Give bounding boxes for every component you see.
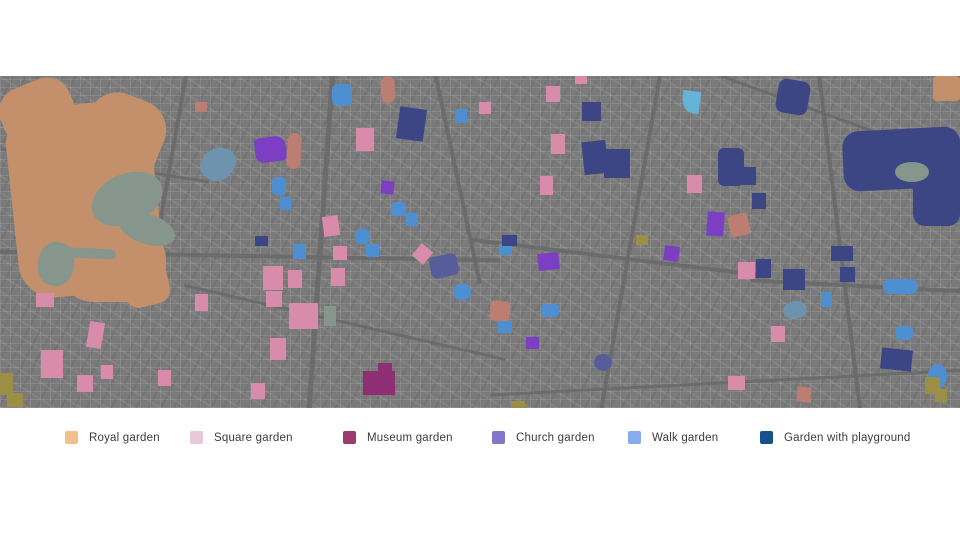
church-garden-area: [706, 211, 725, 236]
playground-garden-area: [255, 236, 268, 246]
district-texture: [430, 76, 590, 156]
playground-garden-area: [756, 259, 771, 278]
walk-garden-area: [332, 84, 352, 106]
church-garden-swatch: [492, 431, 505, 444]
museum-garden-swatch: [343, 431, 356, 444]
square-garden-area: [738, 262, 755, 279]
royal-garden-area: [380, 76, 395, 103]
square-garden-area: [158, 370, 171, 386]
royal-garden-swatch: [65, 431, 78, 444]
legend-label: Royal garden: [89, 429, 160, 447]
walk-garden-area: [821, 292, 832, 307]
legend-label: Square garden: [214, 429, 293, 447]
park-area: [0, 373, 13, 395]
church-garden-area: [663, 245, 680, 262]
royal-garden-area: [195, 102, 207, 112]
playground-garden-area: [783, 269, 805, 290]
walk-garden-area: [391, 202, 406, 216]
square-garden-area: [195, 294, 208, 311]
walk-garden-area: [541, 304, 559, 317]
legend-label: Garden with playground: [784, 429, 911, 447]
square-garden-area: [77, 375, 93, 392]
royal-garden-area: [727, 212, 751, 238]
walk-garden-area: [453, 284, 471, 300]
walk-garden-area: [355, 229, 370, 244]
square-garden-area: [270, 338, 286, 360]
walk-garden-area: [366, 244, 379, 257]
church-garden-area: [537, 252, 560, 271]
playground-garden-area: [831, 246, 853, 261]
legend-label: Church garden: [516, 429, 595, 447]
playground-garden-area: [396, 106, 427, 141]
legend-label: Museum garden: [367, 429, 453, 447]
water-area: [895, 162, 929, 182]
square-garden-area: [546, 86, 560, 102]
church-garden-area: [380, 180, 394, 194]
square-garden-area: [575, 76, 587, 84]
museum-garden-area: [378, 363, 392, 376]
playground-garden-area: [880, 347, 913, 371]
road-line: [750, 278, 960, 294]
garden-with-playground-swatch: [760, 431, 773, 444]
square-garden-area: [263, 266, 283, 290]
royal-garden-area: [796, 386, 811, 402]
square-garden-swatch: [190, 431, 203, 444]
playground-garden-area: [742, 167, 756, 185]
walk-garden-swatch: [628, 431, 641, 444]
square-garden-area: [36, 293, 54, 307]
city-garden-map: [0, 76, 960, 408]
square-garden-area: [331, 268, 345, 286]
square-garden-area: [687, 175, 702, 193]
playground-garden-area: [604, 149, 630, 178]
canal-area: [782, 299, 809, 321]
royal-garden-area: [286, 133, 302, 170]
district-texture: [680, 76, 840, 186]
walk-garden-area: [455, 109, 467, 123]
walk-garden-area: [293, 244, 306, 259]
square-garden-area: [479, 102, 491, 114]
walk-garden-area: [681, 90, 702, 114]
square-garden-area: [551, 134, 565, 154]
square-garden-area: [288, 270, 302, 288]
square-garden-area: [356, 128, 374, 151]
square-garden-area: [41, 350, 63, 378]
water-area: [324, 306, 336, 326]
church-garden-area: [594, 354, 612, 371]
square-garden-area: [101, 365, 113, 379]
square-garden-area: [728, 376, 745, 390]
page: { "legend": { "items": [ {"label": "Roya…: [0, 0, 960, 540]
royal-garden-area: [489, 300, 511, 322]
walk-garden-area: [406, 213, 418, 226]
playground-garden-area: [582, 102, 601, 121]
church-garden-area: [526, 337, 539, 349]
park-area: [511, 401, 525, 408]
church-garden-area: [253, 135, 287, 164]
playground-garden-area: [718, 148, 744, 186]
square-garden-area: [266, 291, 282, 307]
park-area: [636, 235, 648, 245]
legend-label: Walk garden: [652, 429, 718, 447]
playground-garden-area: [840, 267, 855, 282]
square-garden-area: [333, 246, 347, 260]
walk-garden-area: [280, 197, 291, 210]
square-garden-area: [289, 303, 318, 329]
walk-garden-area: [272, 177, 286, 195]
walk-garden-area: [895, 326, 913, 340]
square-garden-area: [322, 215, 341, 237]
park-area: [935, 389, 947, 402]
square-garden-area: [540, 176, 553, 195]
square-garden-area: [251, 383, 265, 399]
playground-garden-area: [752, 193, 766, 209]
playground-garden-area: [774, 77, 811, 116]
legend: Royal garden Square garden Museum garden…: [0, 429, 960, 447]
walk-garden-area: [883, 279, 918, 294]
royal-garden-area: [933, 76, 960, 101]
playground-garden-area: [502, 235, 517, 246]
walk-garden-area: [498, 321, 512, 333]
square-garden-area: [771, 326, 785, 342]
park-area: [7, 393, 23, 407]
